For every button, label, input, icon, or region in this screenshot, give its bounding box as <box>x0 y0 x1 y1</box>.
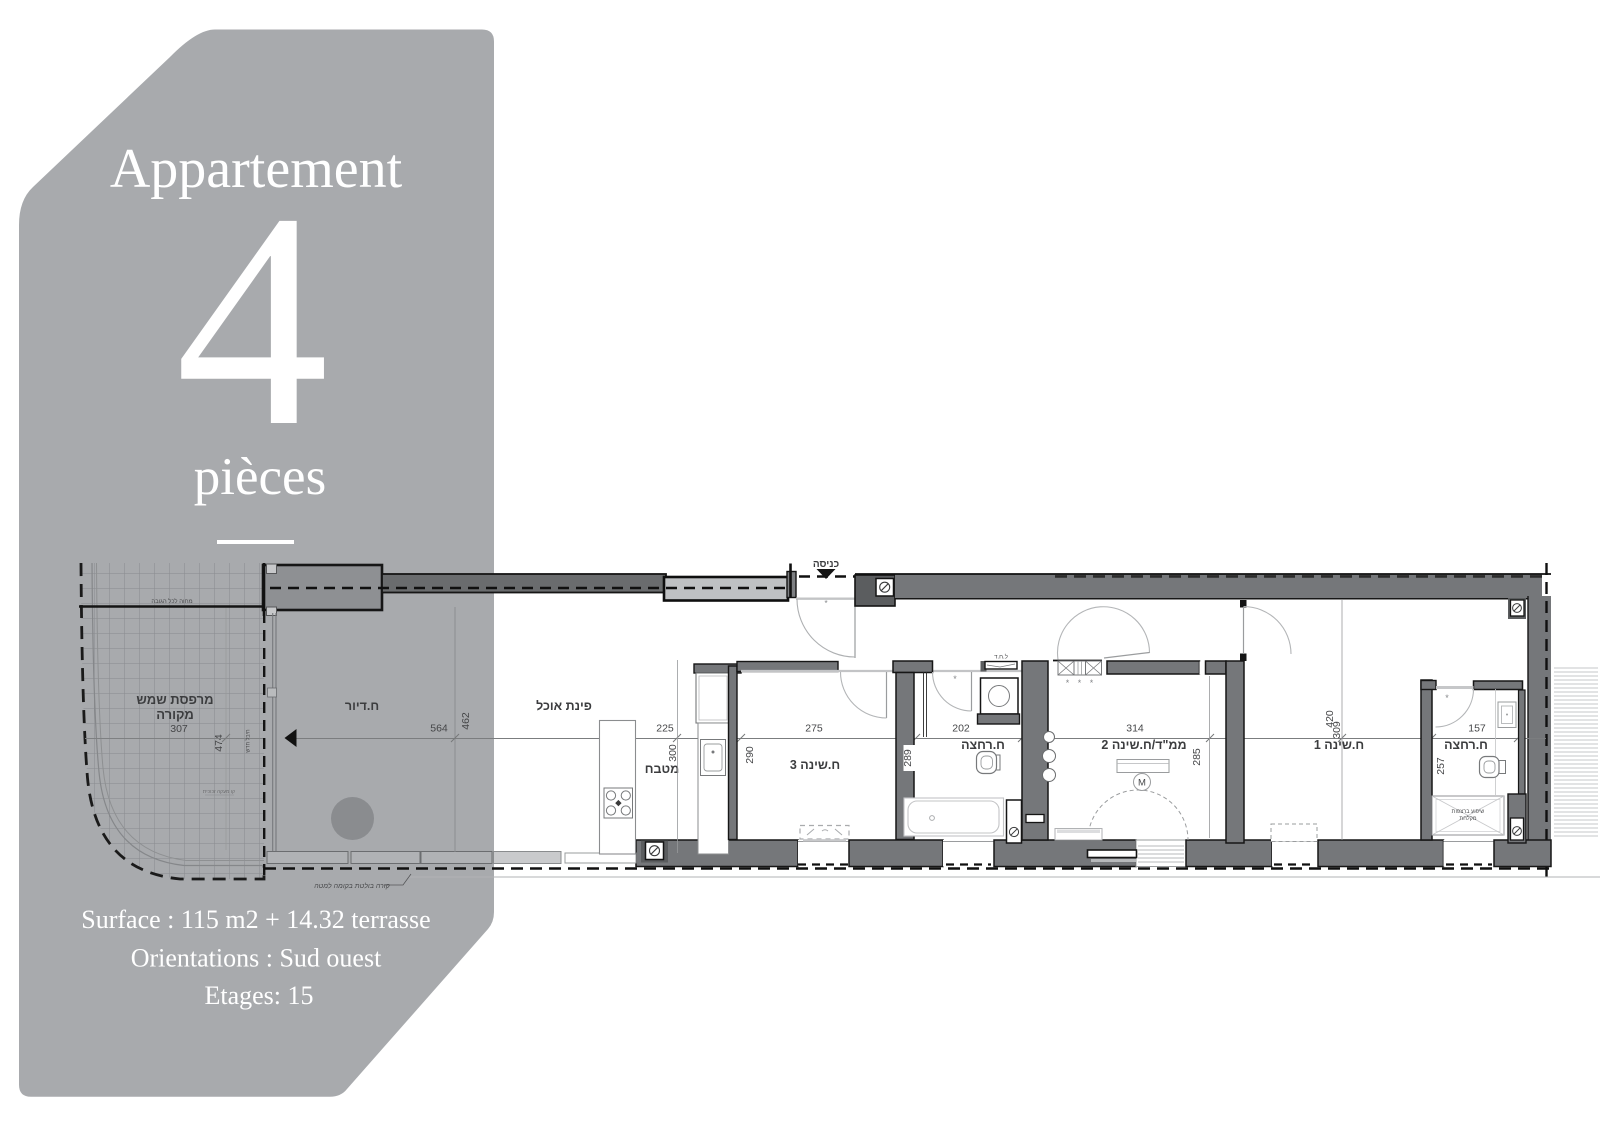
svg-text:157: 157 <box>1468 723 1486 735</box>
svg-text:275: 275 <box>805 723 823 735</box>
svg-text:מרפסת שמש: מרפסת שמש <box>136 692 213 707</box>
svg-text:474: 474 <box>213 734 225 752</box>
svg-text:*: * <box>1078 678 1082 688</box>
svg-text:חיבל חדש: חיבל חדש <box>245 729 252 753</box>
svg-text:314: 314 <box>1126 723 1144 735</box>
svg-text:307: 307 <box>170 723 188 735</box>
svg-text:*: * <box>1090 678 1094 688</box>
svg-text:Orientations : Sud ouest: Orientations : Sud ouest <box>131 944 382 973</box>
svg-text:מחוה לכל הגובה: מחוה לכל הגובה <box>151 597 192 605</box>
svg-text:4: 4 <box>175 150 329 490</box>
svg-text:289: 289 <box>902 749 914 767</box>
svg-text:309: 309 <box>1331 721 1343 739</box>
svg-text:564: 564 <box>430 723 448 735</box>
svg-text:285: 285 <box>1191 748 1203 766</box>
svg-text:225: 225 <box>656 723 674 735</box>
svg-text:ח.דיור: ח.דיור <box>345 699 379 713</box>
svg-text:קורה בולטת בקומה למטה: קורה בולטת בקומה למטה <box>314 882 390 890</box>
svg-text:462: 462 <box>460 712 472 730</box>
svg-text:ח.שינה 3: ח.שינה 3 <box>790 758 840 772</box>
svg-text:*: * <box>1066 678 1070 688</box>
svg-text:ממ"ד/ח.שינה 2: ממ"ד/ח.שינה 2 <box>1101 738 1186 752</box>
svg-text:290: 290 <box>744 746 756 764</box>
svg-text:M: M <box>1138 778 1146 789</box>
svg-text:פינת אוכל: פינת אוכל <box>536 699 592 713</box>
svg-text:ח.רחצה: ח.רחצה <box>1444 738 1488 752</box>
svg-text:כניסה: כניסה <box>813 559 839 570</box>
svg-text:קו מעקה זכוכית: קו מעקה זכוכית <box>203 789 235 795</box>
svg-text:Surface : 115 m2 + 14.32 terra: Surface : 115 m2 + 14.32 terrasse <box>81 905 430 934</box>
svg-text:מקלחת: מקלחת <box>1459 815 1476 822</box>
svg-text:*: * <box>1445 693 1449 703</box>
svg-text:pièces: pièces <box>194 448 326 506</box>
svg-text:מקורה: מקורה <box>156 707 194 722</box>
svg-text:202: 202 <box>952 723 970 735</box>
svg-text:ח.רחצה: ח.רחצה <box>961 738 1005 752</box>
svg-text:*: * <box>953 674 957 684</box>
svg-text:שיפוע ברצפות: שיפוע ברצפות <box>1452 809 1485 815</box>
svg-text:מטבח: מטבח <box>645 762 679 776</box>
svg-text:*: * <box>824 599 827 608</box>
svg-text:Etages: 15: Etages: 15 <box>204 981 313 1010</box>
svg-text:257: 257 <box>1435 757 1447 775</box>
svg-text:ל.ח.ד: ל.ח.ד <box>994 653 1008 661</box>
svg-text:ח.שינה 1: ח.שינה 1 <box>1314 738 1364 752</box>
